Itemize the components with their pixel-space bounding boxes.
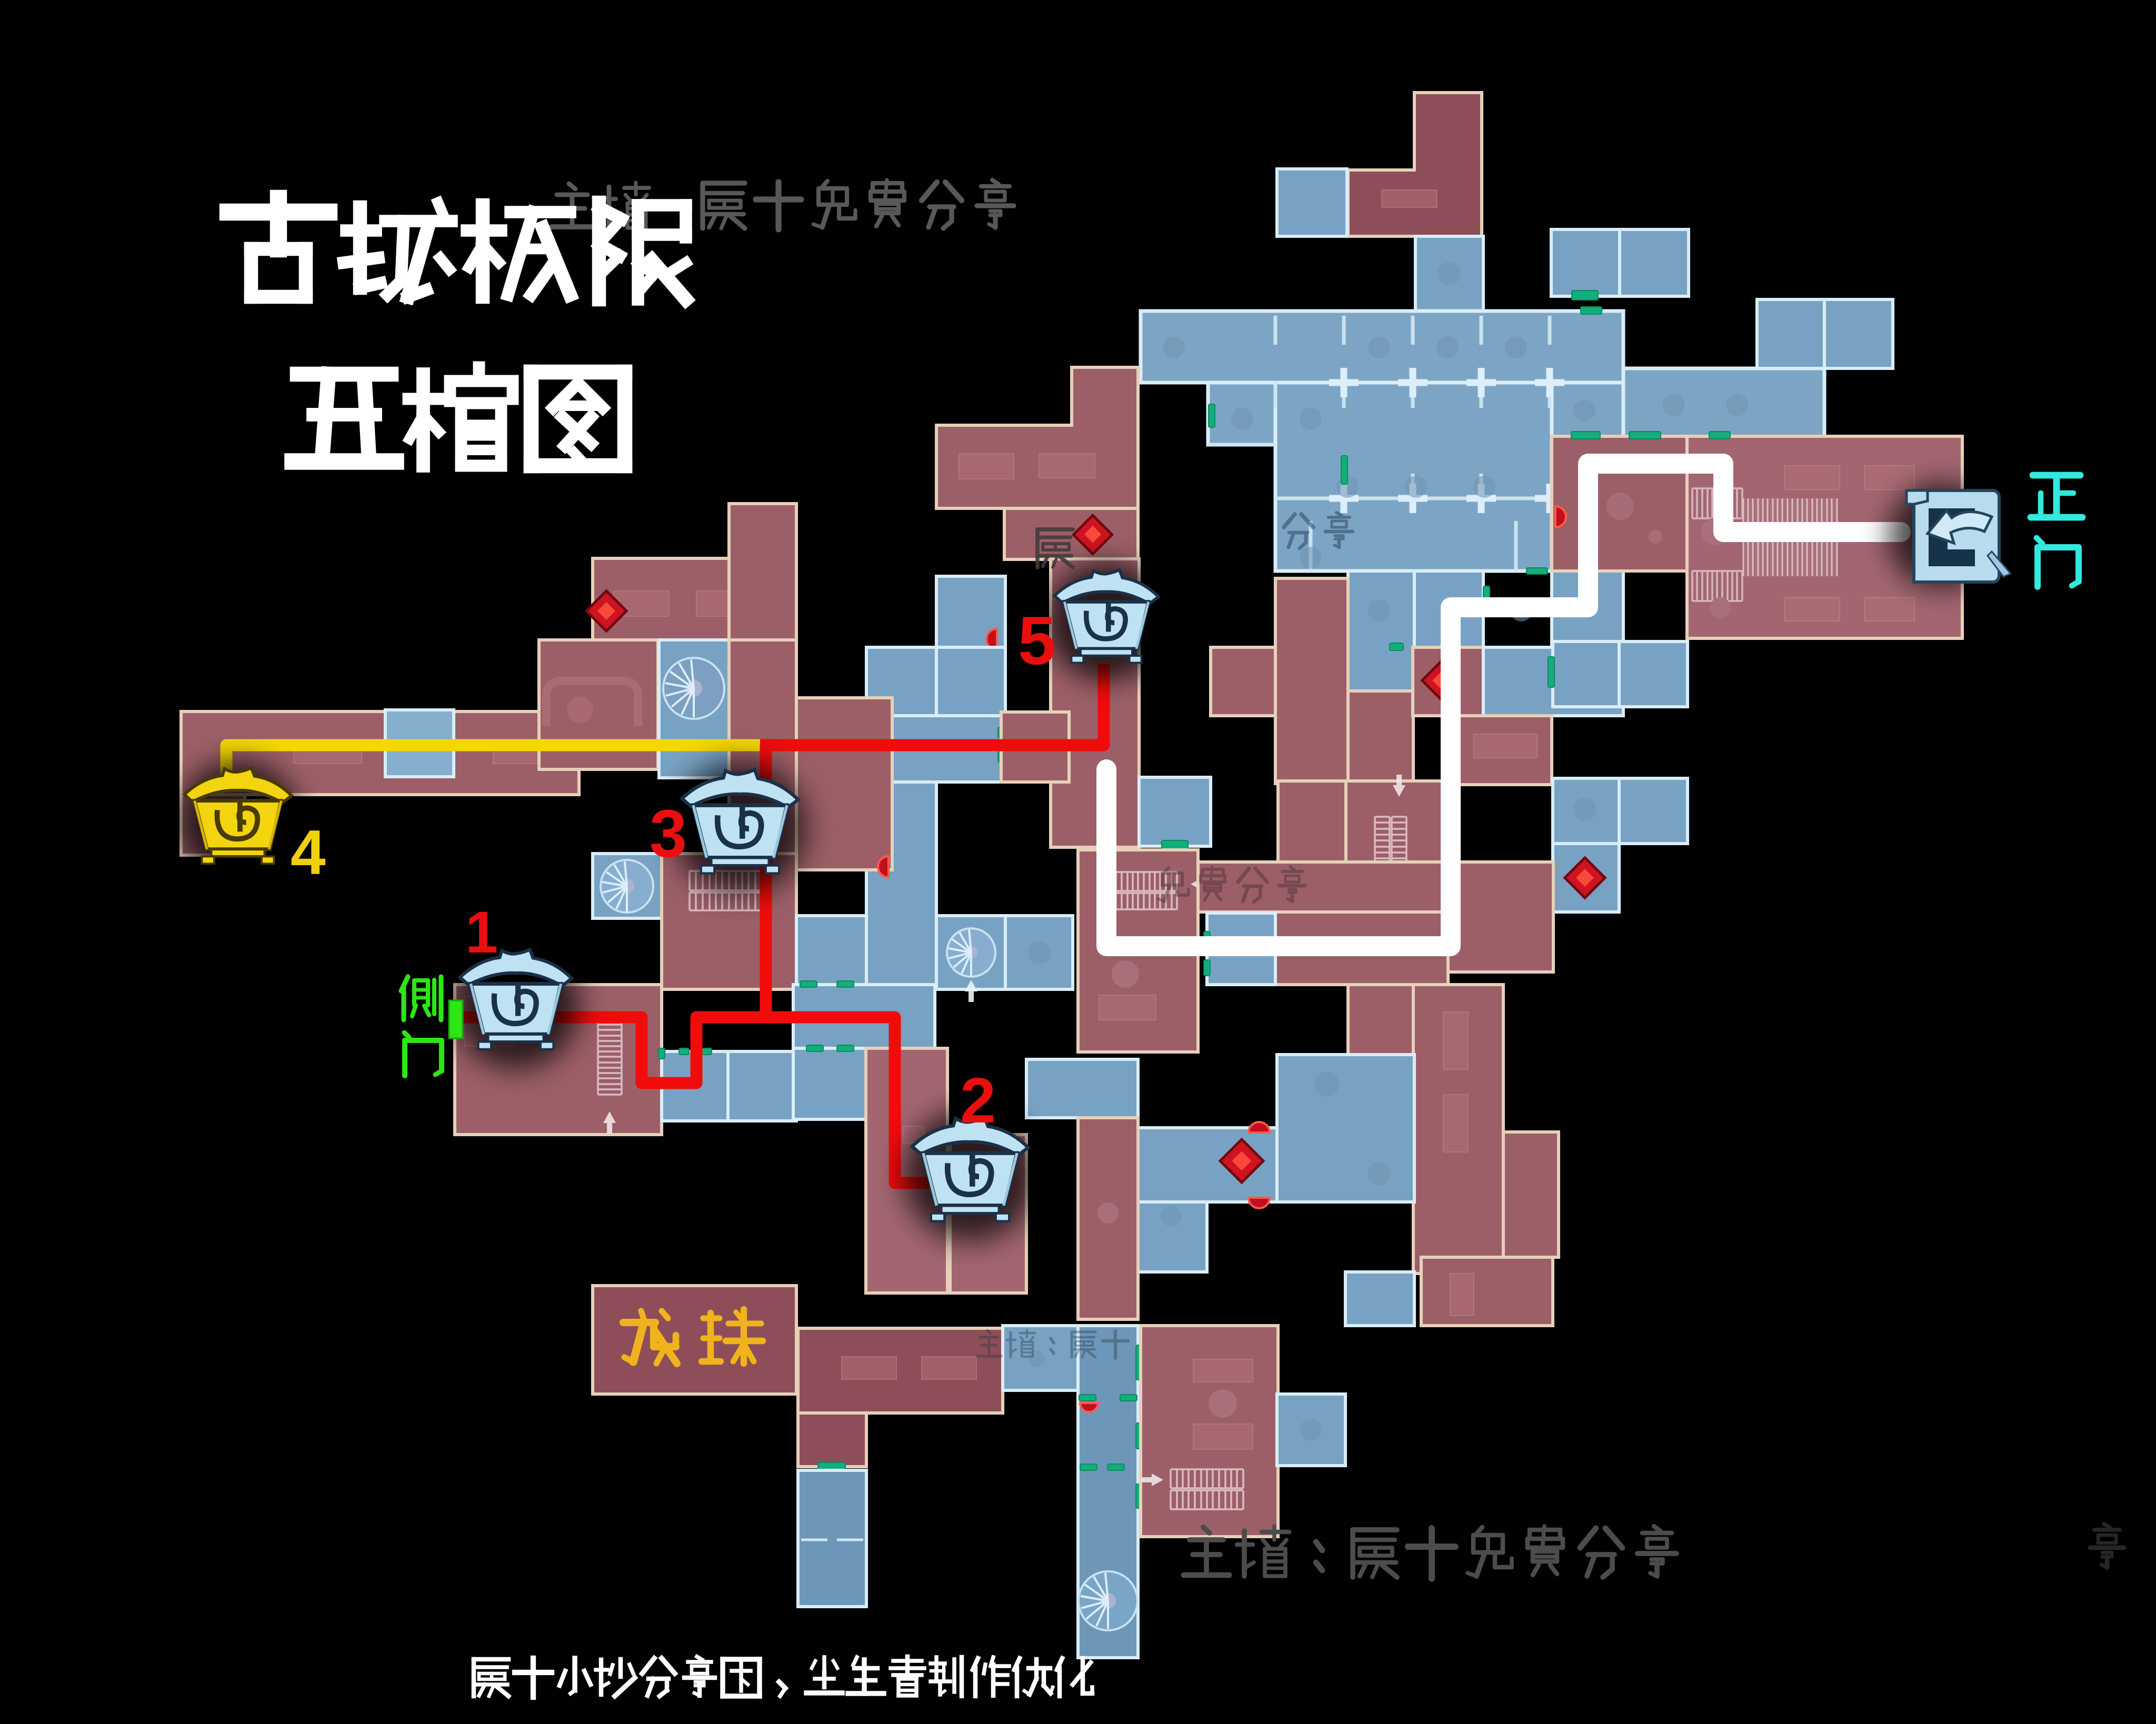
svg-text:1: 1 bbox=[465, 899, 498, 965]
svg-text:2: 2 bbox=[960, 1065, 996, 1136]
svg-text:3: 3 bbox=[650, 796, 687, 871]
svg-text:5: 5 bbox=[1018, 602, 1056, 679]
svg-text:4: 4 bbox=[291, 817, 326, 888]
